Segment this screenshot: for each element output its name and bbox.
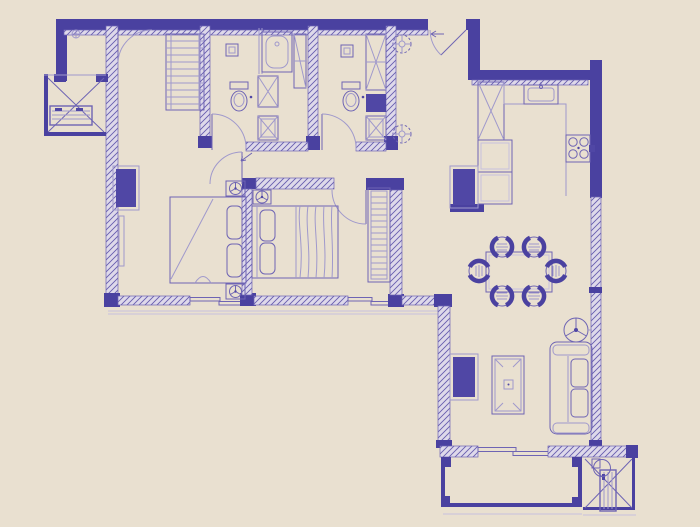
nightstand [253, 190, 271, 204]
shower-drain-icon [226, 44, 238, 56]
kitchen-counter [504, 82, 566, 196]
bedroom-2 [252, 188, 390, 282]
tall-cabinet [366, 34, 386, 90]
toilet-icon [342, 82, 364, 111]
coffee-table-icon [492, 356, 524, 414]
table-lamp-icon [230, 286, 242, 298]
floor-plan-svg [0, 0, 700, 527]
double-bed-icon [170, 197, 246, 283]
ac-platform-left [44, 30, 108, 136]
vanity-cabinet [366, 94, 386, 112]
dining-area [469, 237, 566, 306]
bath-cabinet [294, 34, 306, 88]
entry-arrow [431, 31, 444, 37]
base-cabinet [478, 140, 512, 204]
door-swing-icon [322, 114, 356, 150]
door-swing-icon [212, 114, 246, 150]
window-ledge [108, 311, 440, 314]
ac-outdoor-unit-icon [50, 106, 92, 125]
kitchen [450, 82, 595, 208]
tv-console-icon [450, 354, 478, 400]
ac-platform-right [583, 458, 636, 515]
washbasin-icon [258, 116, 278, 140]
sliding-door-icon [478, 448, 551, 456]
refrigerator-icon [450, 166, 478, 208]
shower-drain-icon [341, 45, 353, 57]
dressing-closet [166, 34, 204, 110]
kitchen-sink-icon [524, 82, 558, 104]
living-room [450, 318, 592, 434]
pantry-cabinet-icon [478, 82, 504, 140]
sliding-door-icon [348, 298, 395, 306]
dining-chair-icon [524, 237, 544, 257]
table-lamp-icon [256, 191, 268, 203]
wardrobe-icon [368, 188, 390, 282]
entry-door-swing-icon [430, 30, 466, 55]
master-bedroom [113, 166, 246, 299]
table-lamp-icon [230, 183, 242, 195]
bathtub-icon [262, 32, 292, 72]
double-bed-icon [252, 206, 338, 278]
bathroom-1 [226, 28, 306, 140]
toilet-icon [230, 82, 252, 111]
floor-plan-page [0, 0, 700, 527]
sofa-icon [550, 342, 592, 434]
dining-chair-icon [492, 237, 512, 257]
vent-fan-icon [592, 459, 611, 477]
bathroom-2 [341, 34, 386, 140]
bedroom-block-bottom-wall [104, 293, 452, 314]
wardrobe-icon [113, 166, 139, 210]
floor-lamp-icon [564, 318, 592, 342]
wall-shelf [119, 216, 124, 266]
swing-arrow [241, 153, 252, 161]
door-swing-icon [332, 190, 366, 224]
shower-stall-icon [258, 76, 278, 107]
washbasin-icon [366, 116, 386, 140]
balcony [441, 457, 582, 514]
exterior-walls [56, 19, 602, 294]
living-walls-and-windows [436, 197, 638, 458]
